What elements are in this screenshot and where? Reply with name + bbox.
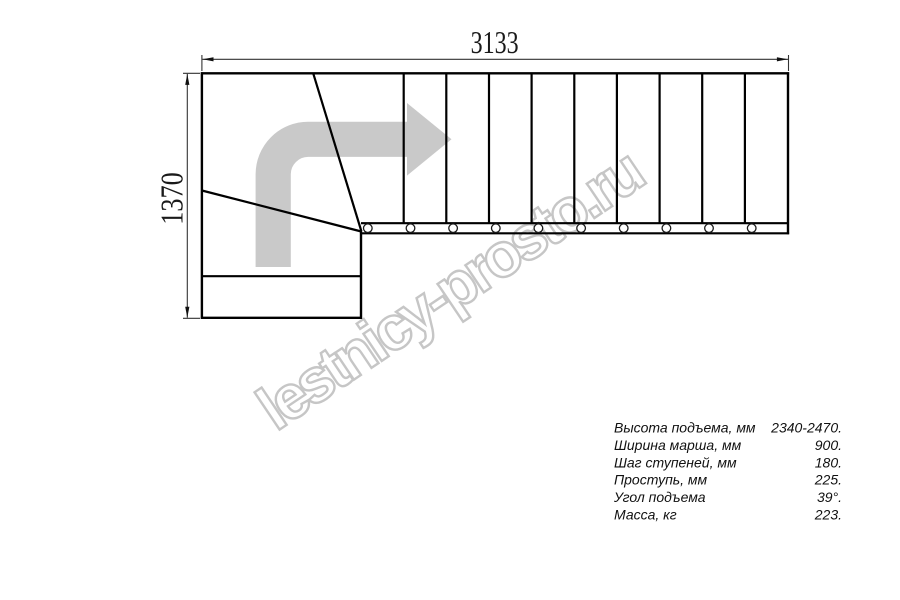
svg-text:Масса, кг: Масса, кг xyxy=(614,507,677,523)
svg-text:180.: 180. xyxy=(815,454,842,470)
svg-text:Проступь, мм: Проступь, мм xyxy=(614,472,708,488)
svg-text:2340-2470.: 2340-2470. xyxy=(770,420,842,436)
svg-text:1370: 1370 xyxy=(155,172,190,224)
svg-text:39°.: 39°. xyxy=(817,489,842,505)
svg-text:Ширина марша, мм: Ширина марша, мм xyxy=(614,437,742,453)
svg-text:900.: 900. xyxy=(815,437,842,453)
svg-text:223.: 223. xyxy=(814,507,842,523)
svg-text:Угол подъема: Угол подъема xyxy=(613,489,706,505)
svg-text:Высота подъема, мм: Высота подъема, мм xyxy=(614,420,756,436)
svg-text:3133: 3133 xyxy=(471,26,519,61)
svg-text:Шаг ступеней, мм: Шаг ступеней, мм xyxy=(614,454,737,470)
svg-text:225.: 225. xyxy=(814,472,842,488)
